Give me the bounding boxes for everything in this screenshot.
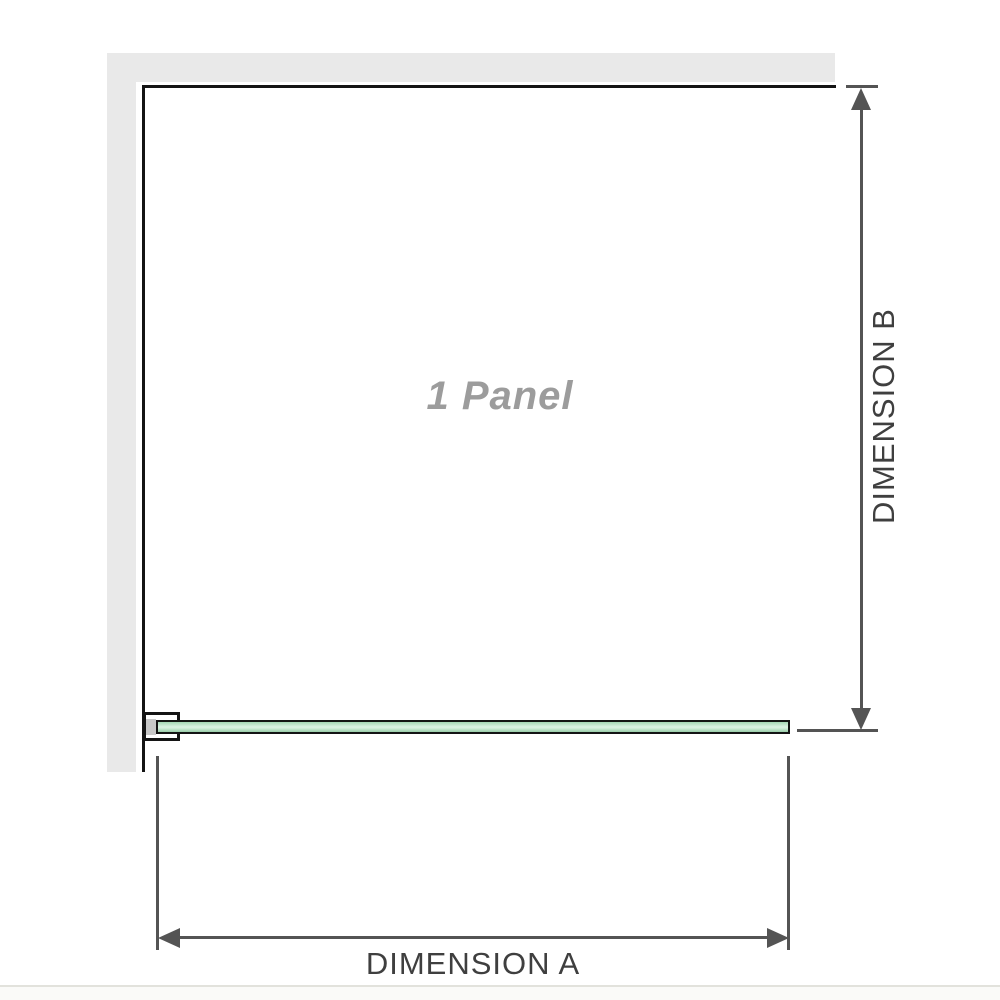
- wall-bracket-shade: [146, 719, 156, 735]
- arrowhead-down-icon: [851, 708, 871, 730]
- dimension-a-extension-right: [787, 756, 790, 950]
- arrowhead-right-icon: [767, 928, 789, 948]
- panel-area-outline-left: [142, 85, 145, 772]
- dimension-b-line: [860, 100, 863, 715]
- dimension-a-label: DIMENSION A: [273, 946, 673, 982]
- page-bottom-strip: [0, 987, 1000, 1000]
- arrowhead-up-icon: [851, 88, 871, 110]
- panel-count-label: 1 Panel: [350, 374, 650, 419]
- dimension-a-extension-left: [156, 756, 159, 950]
- dimension-b-label: DIMENSION B: [866, 310, 902, 522]
- dimension-a-line: [174, 936, 771, 939]
- shower-panel-diagram: 1 Panel DIMENSION B DIMENSION A: [0, 0, 1000, 1000]
- arrowhead-left-icon: [158, 928, 180, 948]
- wall-top: [107, 53, 835, 82]
- panel-area-outline-top: [142, 85, 836, 88]
- wall-left: [107, 53, 136, 772]
- glass-panel: [156, 720, 790, 734]
